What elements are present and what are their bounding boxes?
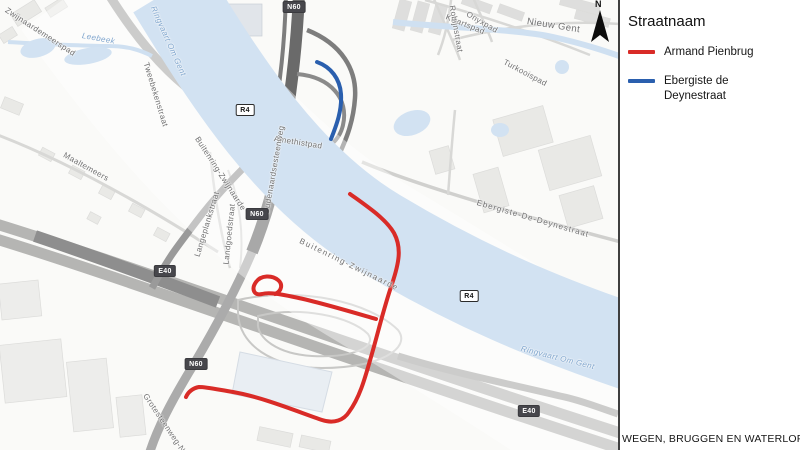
legend-swatch-blue-line — [628, 79, 655, 83]
legend-swatch-red-line — [628, 50, 655, 54]
road-badge-n60: N60 — [283, 1, 306, 13]
screenshot-root: ZwijnaardemeerspadLeebeekRingvaart Om Ge… — [0, 0, 800, 450]
road-badge-n60: N60 — [185, 358, 208, 370]
road-badge-r4: R4 — [460, 290, 479, 302]
legend-label: Ebergiste de Deynestraat — [664, 74, 764, 103]
road-badge-r4: R4 — [236, 104, 255, 116]
north-arrow: N — [585, 0, 615, 48]
road-badge-n60: N60 — [246, 208, 269, 220]
map-caption: WEGEN, BRUGGEN EN WATERLOPEN — [622, 433, 800, 445]
road-badge-e40: E40 — [154, 265, 176, 277]
map-canvas[interactable]: ZwijnaardemeerspadLeebeekRingvaart Om Ge… — [0, 0, 618, 450]
legend-label: Armand Pienbrug — [664, 45, 754, 59]
legend-title: Straatnaam — [628, 13, 800, 30]
legend: Straatnaam Armand Pienbrug Ebergiste de … — [620, 0, 800, 103]
legend-item-ebergiste-de-deynestraat: Ebergiste de Deynestraat — [628, 74, 800, 103]
road-badge-e40: E40 — [518, 405, 540, 417]
legend-item-armand-pienbrug: Armand Pienbrug — [628, 45, 800, 59]
legend-panel: Straatnaam Armand Pienbrug Ebergiste de … — [620, 0, 800, 450]
north-arrow-icon — [585, 0, 615, 48]
